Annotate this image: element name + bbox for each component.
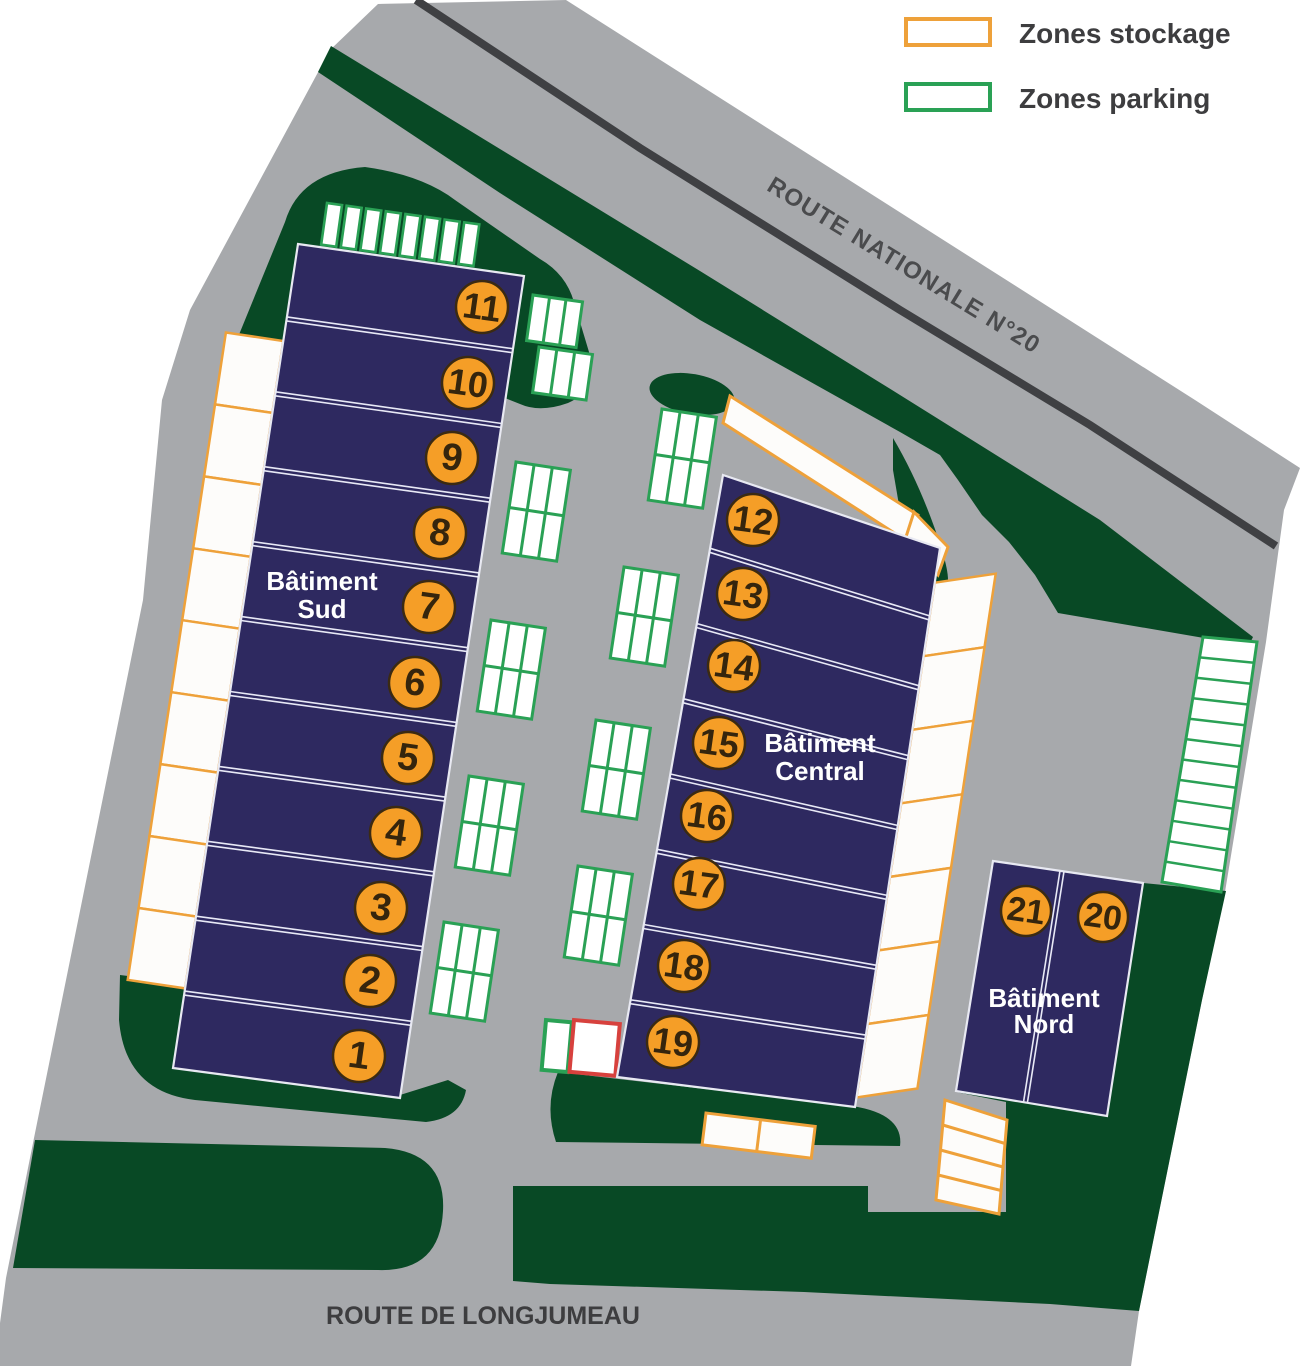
svg-text:10: 10	[445, 360, 490, 406]
svg-text:19: 19	[650, 1019, 695, 1065]
svg-text:14: 14	[711, 643, 756, 689]
svg-text:Zones parking: Zones parking	[1019, 83, 1210, 114]
svg-text:11: 11	[460, 284, 503, 330]
svg-text:18: 18	[661, 943, 706, 989]
svg-text:21: 21	[1005, 890, 1048, 933]
svg-text:Bâtiment: Bâtiment	[764, 728, 876, 758]
svg-text:15: 15	[696, 720, 741, 766]
svg-text:Central: Central	[775, 756, 865, 786]
svg-text:17: 17	[676, 861, 721, 907]
svg-text:16: 16	[684, 793, 729, 839]
svg-text:Nord: Nord	[1014, 1009, 1075, 1039]
svg-text:Bâtiment: Bâtiment	[266, 566, 378, 596]
svg-text:Zones stockage: Zones stockage	[1019, 18, 1231, 49]
svg-text:Sud: Sud	[297, 594, 346, 624]
svg-text:ROUTE DE LONGJUMEAU: ROUTE DE LONGJUMEAU	[326, 1302, 640, 1330]
svg-text:12: 12	[730, 497, 775, 543]
svg-text:20: 20	[1082, 896, 1125, 939]
svg-text:13: 13	[720, 571, 765, 617]
